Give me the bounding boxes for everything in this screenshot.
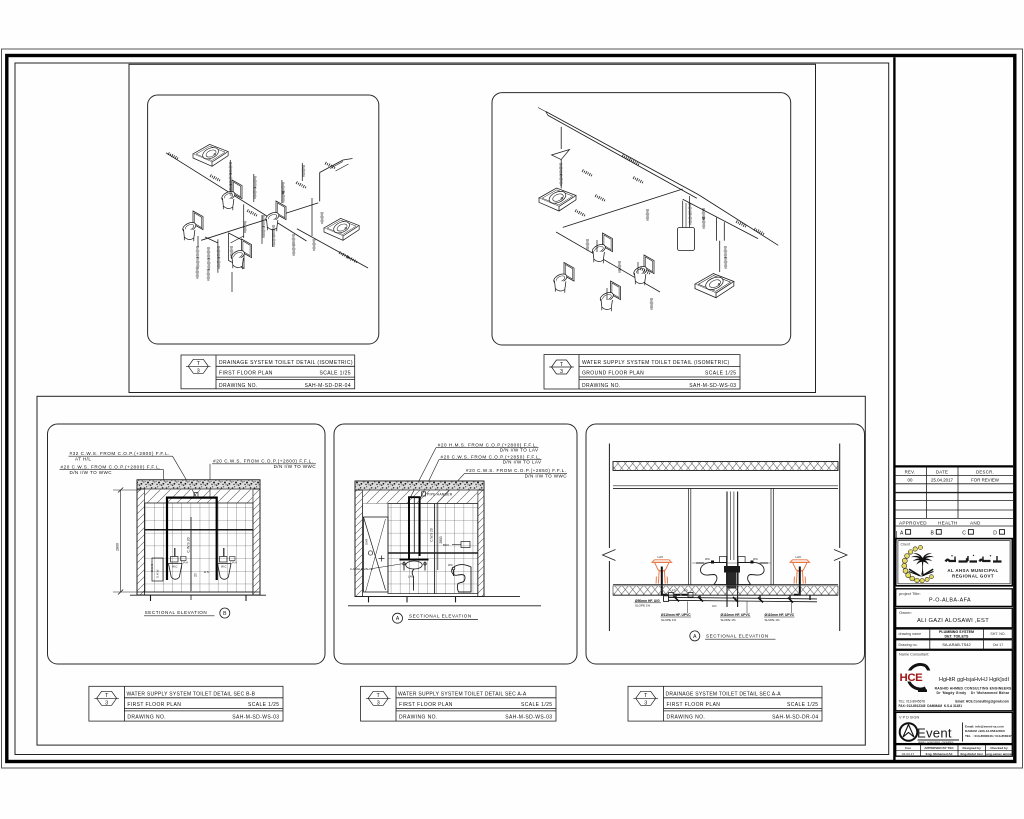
svg-text:AT H/L: AT H/L	[75, 456, 91, 461]
svg-text:SA-ARAB-TS42: SA-ARAB-TS42	[942, 642, 971, 647]
svg-text:Name Consultant:: Name Consultant:	[899, 653, 929, 657]
svg-text:PIPE HANGER: PIPE HANGER	[427, 493, 453, 497]
svg-text:H.S: H.S	[204, 570, 209, 574]
svg-text:ALI GAZI ALOSAWI ,EST: ALI GAZI ALOSAWI ,EST	[917, 618, 989, 624]
svg-text:DET. TOILETS: DET. TOILETS	[945, 634, 969, 638]
svg-text:Oct 17: Oct 17	[993, 643, 1004, 647]
svg-text:3: 3	[560, 369, 563, 375]
svg-text:FIRST FLOOR PLAN: FIRST FLOOR PLAN	[667, 702, 721, 708]
svg-text:SLOPE 1%: SLOPE 1%	[765, 618, 781, 622]
svg-text:2-ANGLE VALVE: 2-ANGLE VALVE	[350, 567, 373, 571]
svg-text:project Title:: project Title:	[899, 591, 921, 596]
svg-text:TEL: 013-8945678: TEL: 013-8945678	[899, 699, 926, 703]
svg-text:FIRST FLOOR PLAN: FIRST FLOOR PLAN	[219, 371, 273, 377]
svg-text:3: 3	[644, 700, 647, 706]
svg-text:TEL : 013-8580046 / 013-85804: TEL : 013-8580046 / 013-8580478	[965, 734, 1014, 738]
svg-text:SAH-M-SD-WS-03: SAH-M-SD-WS-03	[232, 714, 279, 720]
svg-text:SLOPE 1%: SLOPE 1%	[661, 618, 677, 622]
svg-text:DESCR.: DESCR.	[976, 470, 994, 475]
svg-text:HEALTH: HEALTH	[938, 520, 958, 525]
svg-text:D/N I/W TO LAV: D/N I/W TO LAV	[503, 460, 542, 465]
svg-text:3: 3	[197, 368, 200, 374]
svg-text:D/N I/W TO WWC: D/N I/W TO WWC	[70, 470, 113, 475]
svg-text:W.C: W.C	[221, 565, 226, 569]
svg-text:FAX: 013-8912345 DAMMAM K.S.: FAX: 013-8912345 DAMMAM K.S.A 31451	[899, 704, 963, 708]
svg-text:WATER SUPPLY SYSTEM TOILET DET: WATER SUPPLY SYSTEM TOILET DETAIL SEC B-…	[127, 691, 256, 697]
svg-text:SHR: SHR	[365, 538, 369, 545]
svg-text:W.C: W.C	[172, 565, 177, 569]
svg-text:DRAWING NO.: DRAWING NO.	[219, 383, 258, 389]
svg-text:LAV: LAV	[658, 555, 663, 559]
svg-text:T.P.H: T.P.H	[181, 561, 188, 565]
svg-text:PLUMBING SYSTEM: PLUMBING SYSTEM	[939, 630, 974, 634]
svg-text:Owner:: Owner:	[899, 610, 912, 615]
svg-text:Email: HCE.Consulting@gmail.co: Email: HCE.Consulting@gmail.com	[955, 699, 1009, 703]
svg-text:#32 C.W.S. FROM C.O.P.(+2800): #32 C.W.S. FROM C.O.P.(+2800) F.F.L.	[70, 451, 171, 456]
svg-text:Eng. Mohamed Ali: Eng. Mohamed Ali	[926, 752, 953, 756]
svg-text:SLOPE 1%: SLOPE 1%	[635, 604, 651, 608]
svg-text:CO: CO	[712, 604, 717, 608]
svg-text:P-O-ALBA-AFA: P-O-ALBA-AFA	[929, 598, 971, 604]
svg-text:DRAINAGE SYSTEM TOILET DETAIL: DRAINAGE SYSTEM TOILET DETAIL (ISOMETRIC…	[219, 360, 353, 366]
svg-text:drawing name: drawing name	[899, 632, 922, 636]
svg-text:BOX: BOX	[443, 543, 449, 547]
svg-text:REGIONAL GOVT: REGIONAL GOVT	[952, 574, 994, 579]
svg-text:C.W.S 20: C.W.S 20	[187, 537, 191, 552]
svg-text:#20 C.W.S. FROM C.O.P.(+2800): #20 C.W.S. FROM C.O.P.(+2800) F.F.L.	[213, 459, 314, 464]
svg-text:HgHtR ggHsjaHvHJ Hgik]sdI: HgHtR ggHsjaHvHJ Hgik]sdI	[939, 677, 1009, 683]
svg-text:WATER SUPPLY SYSTEM TOILET DET: WATER SUPPLY SYSTEM TOILET DETAIL SEC A-…	[398, 691, 527, 697]
svg-text:DRAWING NO.: DRAWING NO.	[399, 714, 438, 720]
svg-text:SAH-M-SD-DR-04: SAH-M-SD-DR-04	[305, 383, 351, 389]
svg-text:D/N I/W TO WWC: D/N I/W TO WWC	[525, 473, 568, 478]
svg-text:C: C	[962, 531, 966, 537]
svg-text:D: D	[993, 531, 997, 537]
svg-text:SCALE 1/25: SCALE 1/25	[787, 702, 819, 708]
svg-text:HCE: HCE	[900, 672, 924, 684]
svg-text:SHT. NO.: SHT. NO.	[990, 632, 1005, 636]
svg-text:2800: 2800	[116, 543, 120, 551]
svg-text:APPROVED: APPROVED	[899, 520, 927, 525]
svg-text:DRAWING NO.: DRAWING NO.	[582, 383, 621, 389]
svg-text:25.04.2017: 25.04.2017	[931, 478, 954, 483]
svg-text:SAH-M-SD-DR-04: SAH-M-SD-DR-04	[772, 714, 818, 720]
svg-text:WATER SUPPLY SYSTEM TOILET DET: WATER SUPPLY SYSTEM TOILET DETAIL (ISOME…	[582, 360, 730, 366]
svg-text:DATE: DATE	[936, 470, 948, 475]
svg-text:3: 3	[105, 700, 108, 706]
svg-text:D/N I/W TO WWC: D/N I/W TO WWC	[274, 464, 317, 469]
svg-text:eng.samer amma: eng.samer amma	[986, 752, 1012, 756]
svg-text:GROUND FLOOR PLAN: GROUND FLOOR PLAN	[582, 370, 644, 376]
svg-text:Ø50mm HF. U/G: Ø50mm HF. U/G	[635, 599, 660, 603]
svg-text:Date: Date	[905, 746, 912, 750]
svg-text:SCALE 1/25: SCALE 1/25	[319, 371, 351, 377]
svg-text:FIRST FLOOR PLAN: FIRST FLOOR PLAN	[127, 702, 181, 708]
svg-text:FOR REVIEW: FOR REVIEW	[971, 478, 1000, 483]
svg-text:T.P.H: T.P.H	[230, 561, 237, 565]
svg-text:RASHID AHMED CONSULTING ENGINE: RASHID AHMED CONSULTING ENGINEERS	[935, 686, 1012, 690]
svg-text:Ø110mm HF. UPVC: Ø110mm HF. UPVC	[721, 613, 751, 617]
svg-text:SCALE 1/25: SCALE 1/25	[521, 702, 553, 708]
svg-text:S.H.W: S.H.W	[156, 569, 160, 578]
svg-text:20: 20	[194, 573, 198, 577]
svg-text:DRAINAGE SYSTEM TOILET DETAIL: DRAINAGE SYSTEM TOILET DETAIL SEC A-A	[666, 691, 782, 697]
svg-text:Drawing no.: Drawing no.	[899, 643, 918, 647]
svg-text:V P D SIGN: V P D SIGN	[899, 715, 919, 719]
svg-text:DAMAM +966-13-8581235/6: DAMAM +966-13-8581235/6	[965, 729, 1005, 733]
svg-text:Checked by: Checked by	[990, 746, 1008, 750]
svg-text:Email: info@event-sa.com: Email: info@event-sa.com	[965, 724, 1004, 728]
svg-text:WC: WC	[448, 563, 453, 567]
svg-text:DRAWING NO.: DRAWING NO.	[127, 714, 166, 720]
svg-text:APPROVED BY TEC: APPROVED BY TEC	[924, 746, 954, 750]
svg-text:SECTIONAL ELEVATION: SECTIONAL ELEVATION	[706, 633, 769, 638]
svg-text:Ø110mm HF. UPVC: Ø110mm HF. UPVC	[661, 613, 691, 617]
svg-text:00: 00	[908, 478, 913, 483]
svg-text:SECTIONAL ELEVATION: SECTIONAL ELEVATION	[409, 614, 472, 619]
svg-text:O.H.S: O.H.S	[150, 564, 154, 572]
svg-text:SECTIONAL ELEVATION: SECTIONAL ELEVATION	[145, 610, 208, 615]
svg-text:Client: Client	[901, 542, 912, 546]
svg-text:WC: WC	[705, 557, 711, 561]
svg-text:Dr 'Magdy Gindy Dr 'Mohamme: Dr 'Magdy Gindy Dr 'Mohammed Bkhar	[937, 691, 1010, 695]
svg-text:SCALE 1/25: SCALE 1/25	[248, 702, 280, 708]
svg-text:SAH-M-SD-WS-03: SAH-M-SD-WS-03	[505, 714, 552, 720]
svg-text:#20 C.W.S. FROM C.O.P.(+2800): #20 C.W.S. FROM C.O.P.(+2800) F.F.L.	[61, 464, 162, 469]
svg-text:WC: WC	[753, 557, 759, 561]
svg-text:04-04-17: 04-04-17	[902, 752, 915, 756]
svg-text:LAV: LAV	[408, 575, 413, 579]
svg-text:Designed by: Designed by	[962, 746, 981, 750]
svg-text:LAV: LAV	[796, 555, 801, 559]
svg-text:C.W.S 20: C.W.S 20	[430, 528, 434, 542]
svg-text:DRAWING NO.: DRAWING NO.	[667, 714, 706, 720]
svg-text:Event: Event	[917, 726, 952, 741]
svg-text:design supervision consultin: design supervision consulting	[918, 740, 954, 744]
svg-text:Ø110mm HF. UPVC: Ø110mm HF. UPVC	[765, 613, 795, 617]
svg-text:REV.: REV.	[905, 470, 916, 475]
svg-text:Eng.Abdul Aziz: Eng.Abdul Aziz	[960, 752, 983, 756]
svg-text:D/N I/W TO LAV: D/N I/W TO LAV	[500, 448, 539, 453]
svg-text:SCALE 1/25: SCALE 1/25	[705, 370, 737, 376]
svg-text:SLOPE 1%: SLOPE 1%	[721, 618, 737, 622]
svg-text:FIRST FLOOR PLAN: FIRST FLOOR PLAN	[399, 702, 453, 708]
svg-text:AND: AND	[970, 520, 981, 525]
svg-text:SAH-M-SD-WS-03: SAH-M-SD-WS-03	[689, 383, 736, 389]
svg-text:3: 3	[377, 700, 380, 706]
svg-text:AL AHSA MUNICIPAL: AL AHSA MUNICIPAL	[947, 568, 998, 573]
